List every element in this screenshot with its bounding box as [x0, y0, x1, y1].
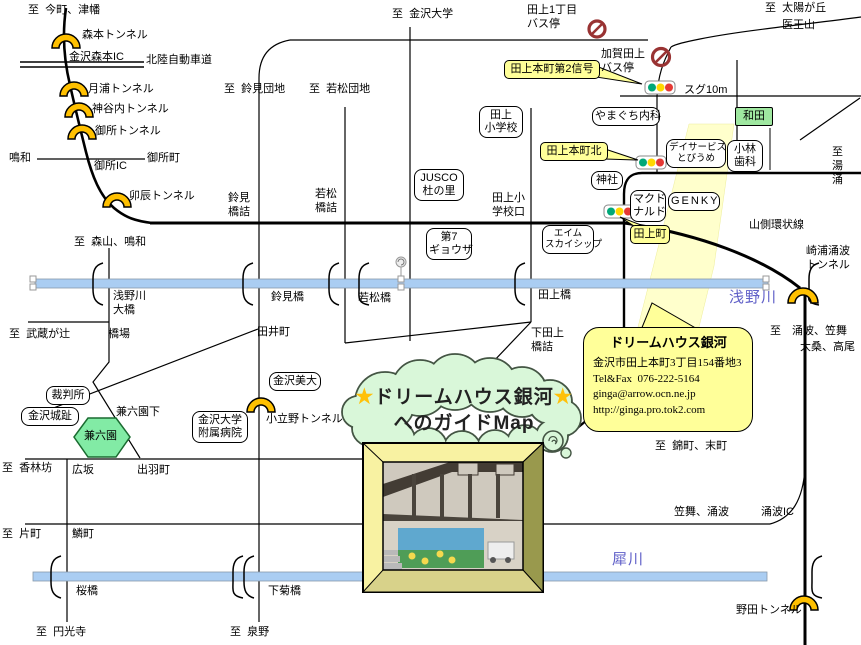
morimoto-tunnel-icon [52, 34, 80, 48]
callout-tagamihonmachi-kita: 田上本町北 [540, 142, 608, 161]
label-taimachi: 田井町 [257, 326, 290, 340]
landmark-bidai: 金沢美大 [269, 372, 321, 391]
label-to-wakunami-kasamai: 至 涌波、笠舞 [770, 325, 847, 339]
landmark-kobayashi-dental: 小林 歯科 [727, 140, 763, 172]
info-tel: Tel&Fax 076-222-5164 [593, 372, 744, 388]
label-goshomachi: 御所町 [147, 152, 180, 166]
label-kenrokuen: 兼六園 [84, 430, 117, 444]
info-url: http://ginga.pro.tok2.com [593, 403, 744, 419]
udatsu-tunnel-icon [103, 193, 131, 207]
map-title-line1: ★ドリームハウス銀河★ [348, 384, 580, 411]
label-wakamatsubashi: 若松橋 [358, 292, 391, 306]
label-to-wakamatsu-danchi: 至 若松団地 [309, 83, 370, 97]
label-gosho-ic: 御所IC [94, 160, 127, 174]
label-morimoto-tunnel: 森本トンネル [82, 29, 148, 43]
label-tagami-es-guchi: 田上小 学校口 [492, 192, 525, 220]
label-kagatagami-busstop: 加賀田上 バス停 [601, 48, 645, 76]
label-shimokikubashi: 下菊橋 [268, 585, 301, 599]
label-wakunami-ic: 涌波IC [761, 506, 794, 520]
label-tsukiura-tunnel: 月浦トンネル [88, 83, 154, 97]
label-saigawa-river: 犀川 [612, 551, 644, 570]
landmark-genky: GENKY [668, 192, 720, 211]
label-to-imamachi: 至 今町、津幡 [28, 4, 100, 18]
map-canvas: 至 今町、津幡 森本トンネル 金沢森本IC 北陸自動車道 月浦トンネル 神谷内ト… [0, 0, 861, 645]
label-to-moriyama: 至 森山、鳴和 [74, 236, 146, 250]
landmark-yamaguchi-clinic: やまぐち内科 [592, 107, 660, 126]
landmark-gyoza: 第7 ギョウザ [426, 228, 472, 260]
label-asanogawa-river: 浅野川 [729, 289, 777, 308]
landmark-aim-skyship: エイム スカイシップ [542, 225, 594, 254]
label-kasamai-wakunami: 笠舞、涌波 [674, 506, 729, 520]
landmark-mcdonalds: マクド ナルド [630, 190, 666, 222]
label-tagamibashi: 田上橋 [538, 289, 571, 303]
label-yamagawa-loop: 山側環状線 [749, 219, 804, 233]
road-taiyogaoka-curve [671, 17, 861, 47]
label-to-musashi: 至 武蔵が辻 [9, 328, 70, 342]
building-photo [383, 462, 523, 570]
landmark-dayservice: デイサービス とびうめ [666, 139, 726, 168]
landmark-courthouse: 裁判所 [46, 386, 90, 405]
landmark-univ-hospital: 金沢大学 附属病院 [192, 411, 248, 443]
label-sugu10m: スグ10m [684, 84, 727, 98]
landmark-tagami-elementary: 田上 小学校 [479, 106, 523, 138]
label-to-suzumi-danchi: 至 鈴見団地 [224, 83, 285, 97]
landmark-wada: 和田 [735, 107, 773, 126]
kodatsuno-tunnel-icon [247, 398, 275, 412]
label-hokuriku-expwy: 北陸自動車道 [146, 54, 212, 68]
label-kodatsuno-tunnel: 小立野トンネル [266, 413, 343, 427]
label-sakurabashi: 桜橋 [76, 585, 98, 599]
traffic-light-icon-1 [645, 81, 675, 94]
label-noda-tunnel: 野田トンネル [736, 604, 802, 618]
landmark-jusco: JUSCO 杜の里 [414, 169, 464, 201]
map-geometry [0, 0, 861, 645]
star-icon: ★ [355, 386, 374, 408]
info-mail: ginga@arrow.ocn.ne.jp [593, 387, 744, 403]
label-to-nishikimachi: 至 錦町、末町 [655, 440, 727, 454]
label-tagami1-busstop: 田上1丁目 バス停 [527, 4, 577, 32]
info-address: 金沢市田上本町3丁目154番地3 [593, 356, 744, 372]
label-udatsu-tunnel: 卯辰トンネル [129, 190, 195, 204]
tsukiura-tunnel-icon [60, 82, 88, 96]
label-asanogawa-ohashi: 浅野川 大橋 [113, 290, 146, 318]
label-to-yuwaku: 至 湯 涌 [832, 146, 843, 187]
star-icon: ★ [554, 386, 573, 408]
sakiura-tunnel-icon [788, 288, 818, 303]
label-shimotagami-hashizume: 下田上 橋詰 [531, 327, 564, 355]
map-title-line2: へのガイドMap [348, 411, 580, 437]
label-kamiyachi-tunnel: 神谷内トンネル [92, 103, 169, 117]
callout-signal2: 田上本町第2信号 [504, 60, 600, 79]
label-suzumibashi: 鈴見橋 [271, 291, 304, 305]
label-gosho-tunnel: 御所トンネル [95, 125, 161, 139]
label-dewamachi: 出羽町 [137, 464, 170, 478]
label-naruwa: 鳴和 [9, 152, 31, 166]
no-entry-icon-2 [653, 49, 670, 66]
label-kenrokuen-shita: 兼六園下 [116, 406, 160, 420]
label-hashiba: 橋場 [108, 328, 130, 342]
label-morimoto-ic: 金沢森本IC [69, 51, 124, 65]
label-to-korinbo: 至 香林坊 [2, 462, 52, 476]
traffic-light-icon-2 [636, 156, 666, 169]
label-to-izumino: 至 泉野 [230, 626, 269, 640]
label-to-enkoji: 至 円光寺 [36, 626, 86, 640]
label-okuwa-takao: 大桑、高尾 [800, 341, 855, 355]
info-callout: ドリームハウス銀河 金沢市田上本町3丁目154番地3 Tel&Fax 076-2… [583, 327, 753, 432]
callout-tagamimachi: 田上町 [630, 225, 670, 244]
label-urokomachi: 鱗町 [72, 528, 94, 542]
no-entry-icon-1 [589, 21, 605, 37]
label-wakamatsu-hashizume: 若松 橋詰 [315, 188, 337, 216]
label-to-kanazawa-univ: 至 金沢大学 [392, 8, 453, 22]
kamiyachi-tunnel-icon [65, 103, 93, 117]
map-title-text: ドリームハウス銀河 [374, 387, 553, 408]
building-photo-frame [363, 443, 543, 592]
label-to-taiyogaoka: 至 太陽が丘 [765, 2, 826, 16]
label-to-katamachi: 至 片町 [2, 528, 41, 542]
label-iozen: 医王山 [782, 19, 815, 33]
label-sakiura-tunnel: 崎浦涌波 トンネル [797, 245, 859, 273]
map-title: ★ドリームハウス銀河★ へのガイドMap [348, 384, 580, 437]
label-hirosaka: 広坂 [72, 464, 94, 478]
landmark-castle-ruins: 金沢城趾 [21, 407, 79, 426]
label-suzumi-hashizume: 鈴見 橋詰 [228, 192, 250, 220]
landmark-jinja: 神社 [591, 171, 623, 190]
info-title: ドリームハウス銀河 [593, 335, 744, 351]
